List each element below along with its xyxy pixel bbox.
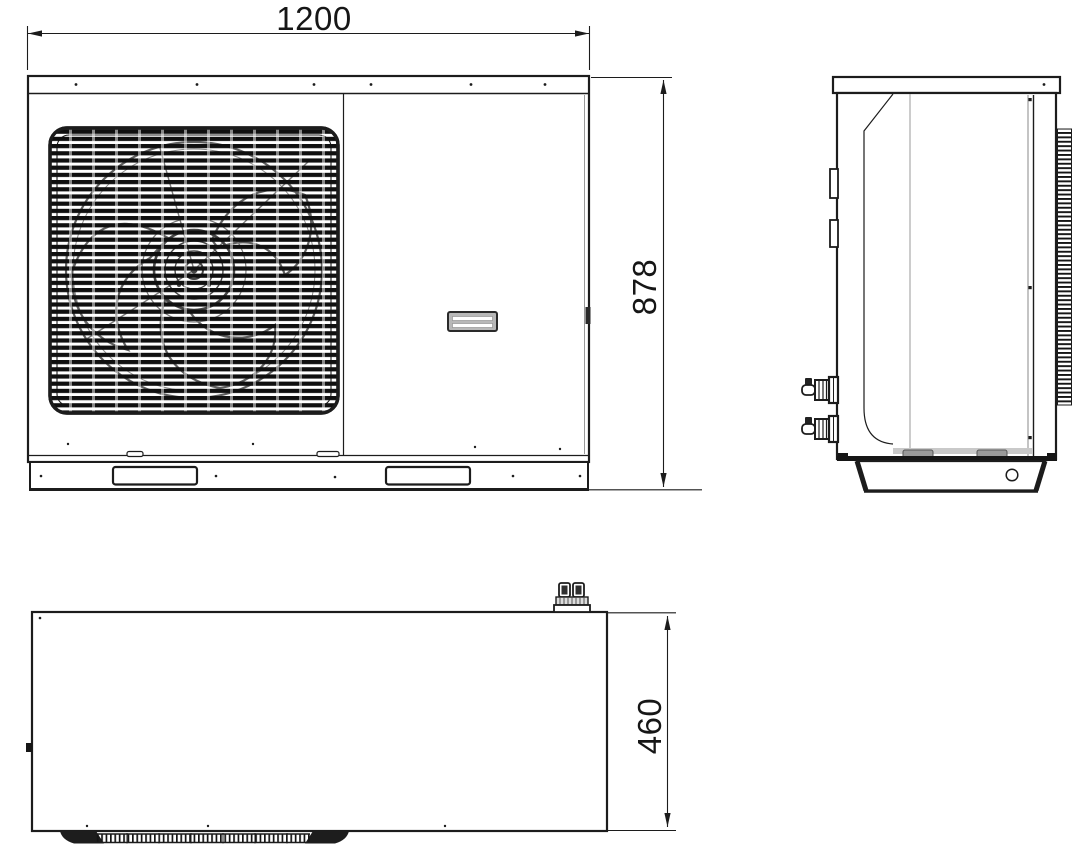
dim-arrow — [660, 80, 666, 94]
fan-grille — [50, 128, 338, 413]
width-dimension-label: 1200 — [276, 0, 351, 37]
dim-arrow — [660, 473, 666, 487]
grille-tab — [127, 452, 143, 457]
dimension-drawing: 1200 878 460 — [0, 0, 1082, 856]
water-valve — [802, 377, 838, 403]
dim-arrow — [575, 30, 589, 36]
rail-end — [1047, 453, 1057, 461]
water-valve — [802, 416, 838, 442]
foot-slot — [113, 467, 197, 485]
top-panel — [32, 612, 607, 831]
side-top-cap — [833, 77, 1060, 93]
corner-screw — [39, 617, 42, 620]
side-panel — [837, 93, 1056, 459]
depth-dimension-label: 460 — [631, 698, 668, 755]
handle-recess — [448, 312, 497, 331]
dim-width: 1200 — [28, 0, 590, 70]
front-view — [28, 76, 591, 490]
valve-fitting-top — [554, 583, 590, 612]
rail-end — [838, 453, 848, 461]
dim-arrow — [664, 813, 670, 827]
top-view — [26, 583, 607, 844]
drain-hole — [1006, 469, 1018, 481]
top-heat-exchanger-strip — [60, 831, 349, 844]
drawing-canvas: 1200 878 460 — [0, 0, 1082, 856]
dim-arrow — [664, 616, 670, 630]
edge-latch — [586, 307, 591, 324]
pedestal-foot — [857, 461, 1045, 492]
foot-slot — [386, 467, 470, 485]
dim-depth: 460 — [608, 613, 676, 831]
dim-arrow — [28, 30, 42, 36]
grille-ribs — [50, 128, 338, 413]
side-view — [802, 77, 1072, 492]
height-dimension-label: 878 — [626, 259, 663, 316]
cap-screw — [1043, 83, 1046, 86]
grille-tab — [317, 452, 339, 457]
heat-exchanger-fins — [1058, 129, 1072, 405]
side-bracket — [830, 220, 838, 247]
base-pan — [29, 462, 589, 490]
dim-height: 878 — [589, 78, 702, 490]
side-bracket — [830, 169, 838, 198]
edge-clip — [26, 743, 32, 752]
